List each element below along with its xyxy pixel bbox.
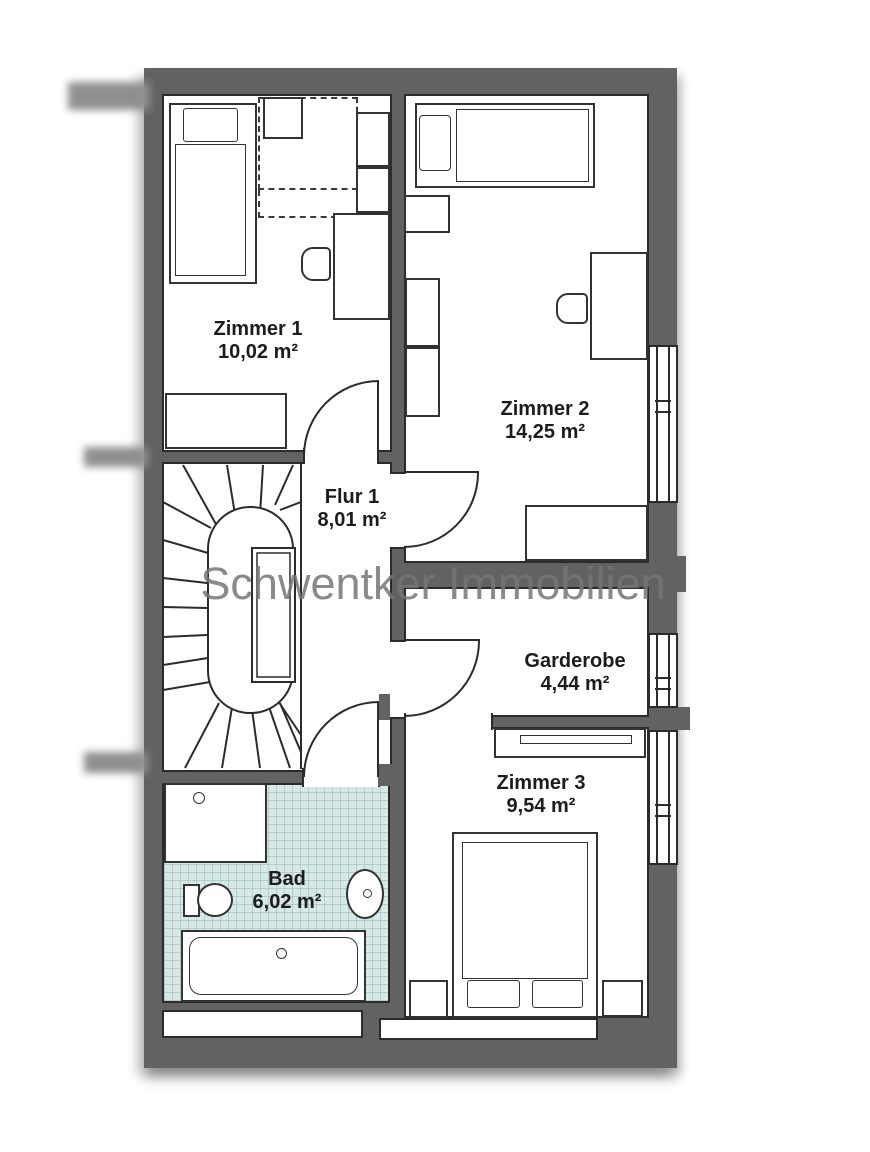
watermark: Schwentker Immobilien [200,558,665,610]
chair-icon [301,247,331,281]
wall-stub-flur [379,694,390,720]
room-name: Zimmer 2 [501,398,590,421]
window-pane-line [668,347,670,501]
room-label-flur1: Flur 1 8,01 m² [318,486,387,532]
room-area: 10,02 m² [214,341,303,364]
door-leaf-zimmer2 [404,471,479,473]
pillow-icon [419,115,451,171]
window-zimmer3-bottom [379,1018,598,1040]
room-name: Garderobe [524,650,625,673]
stairs-icon [163,464,302,769]
nightstand-icon [602,980,643,1017]
shelf-icon [356,167,390,213]
sideboard-icon [525,505,648,561]
door-leaf-bad [377,701,379,777]
shelf-icon [356,112,390,167]
washbasin-drain-icon [363,889,372,898]
sideboard-icon [165,393,287,449]
pillow-icon [183,108,238,142]
door-leaf-zimmer1 [377,381,379,457]
window-garderobe [648,633,678,708]
floor-plan: Zimmer 1 10,02 m² Zimmer 2 14,25 m² Flur… [0,0,870,1152]
shelf-icon [405,347,440,417]
window-pane-line [656,635,658,706]
room-area: 4,44 m² [524,673,625,696]
window-mullion [655,677,671,690]
bathtub-drain-icon [276,948,287,959]
cabinet-icon [263,97,303,139]
pillow-icon [467,980,520,1008]
wall-stub-right-upper [677,556,686,592]
pillow-icon [532,980,583,1008]
door-leaf-garderobe [404,639,480,641]
room-area: 14,25 m² [501,421,590,444]
room-label-bad: Bad 6,02 m² [253,868,322,914]
mattress-icon [175,144,246,276]
shower-icon [164,783,267,863]
window-pane-line [656,732,658,863]
room-label-zimmer3: Zimmer 3 9,54 m² [497,772,586,818]
room-name: Bad [253,868,322,891]
room-label-zimmer1: Zimmer 1 10,02 m² [214,318,303,364]
wall-stub-right-lower [677,707,690,730]
window-zimmer2 [648,345,678,503]
shelf-icon [405,278,440,347]
window-zimmer3 [648,730,678,865]
chair-icon [556,293,588,324]
room-label-zimmer2: Zimmer 2 14,25 m² [501,398,590,444]
wardrobe-door-icon [520,735,632,744]
room-name: Flur 1 [318,486,387,509]
room-name: Zimmer 1 [214,318,303,341]
room-area: 9,54 m² [497,795,586,818]
neighbour-wall-stub-middle [84,447,148,467]
shower-drain-icon [193,792,205,804]
room-label-garderobe: Garderobe 4,44 m² [524,650,625,696]
bathtub-inner-icon [189,937,358,995]
window-mullion [655,804,671,817]
room-name: Zimmer 3 [497,772,586,795]
window-pane-line [668,635,670,706]
mattress-icon [462,842,588,979]
nightstand-icon [404,195,450,233]
room-area: 6,02 m² [253,891,322,914]
neighbour-wall-stub-top [68,82,150,110]
nightstand-icon [409,980,448,1018]
window-bad-bottom [162,1010,363,1038]
window-mullion [655,400,671,413]
desk-icon [333,213,390,320]
wall-stub-bad-door [378,764,392,786]
window-pane-line [656,347,658,501]
mattress-icon [456,109,589,182]
toilet-icon [197,883,233,917]
desk-icon [590,252,648,360]
window-pane-line [668,732,670,863]
neighbour-wall-stub-bottom [84,752,148,773]
room-area: 8,01 m² [318,509,387,532]
